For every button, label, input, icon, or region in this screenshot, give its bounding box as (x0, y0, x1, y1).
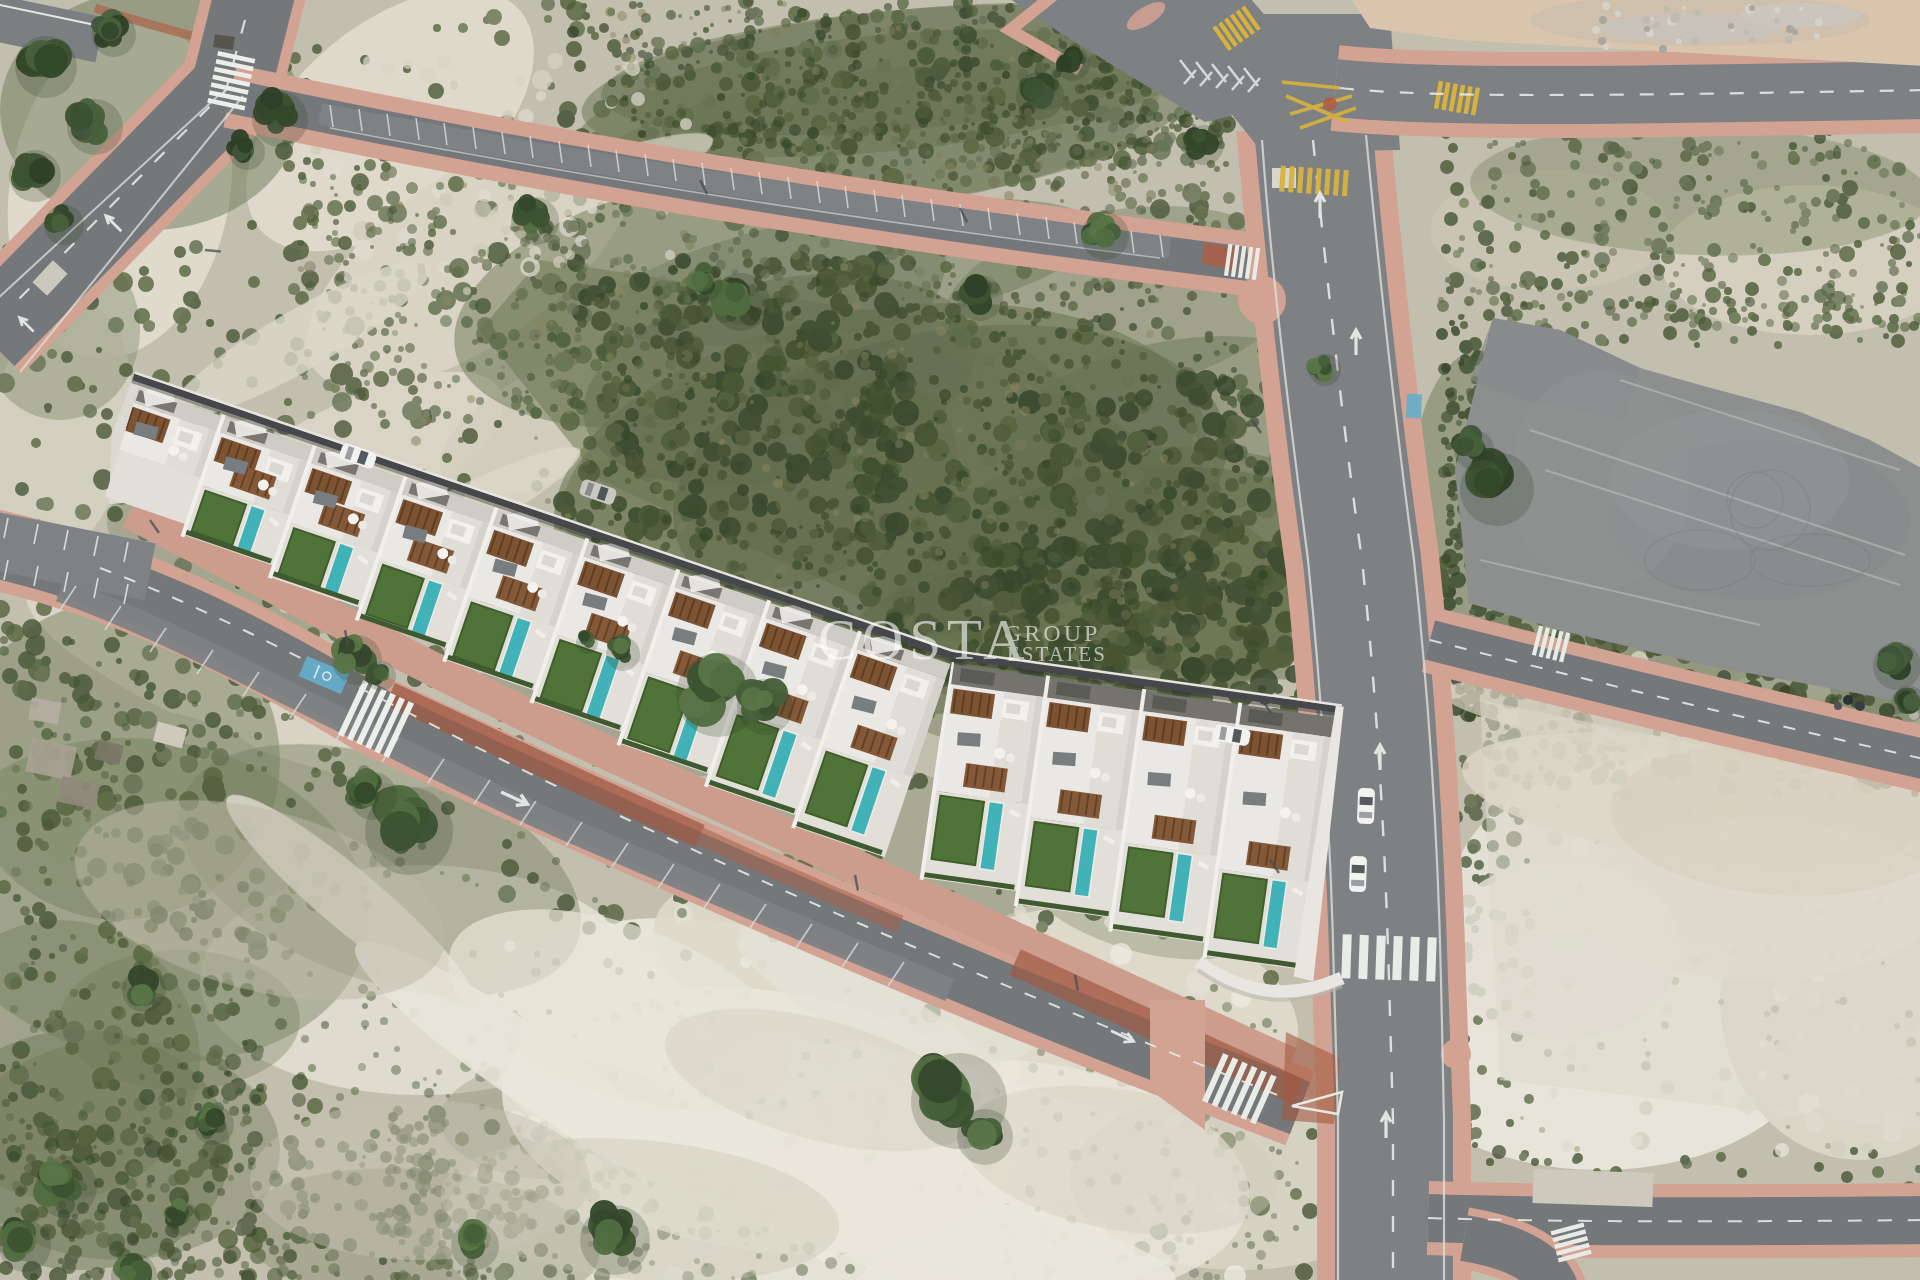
svg-text:COSTA: COSTA (818, 608, 1030, 671)
svg-text:ESTATES: ESTATES (1007, 642, 1107, 666)
